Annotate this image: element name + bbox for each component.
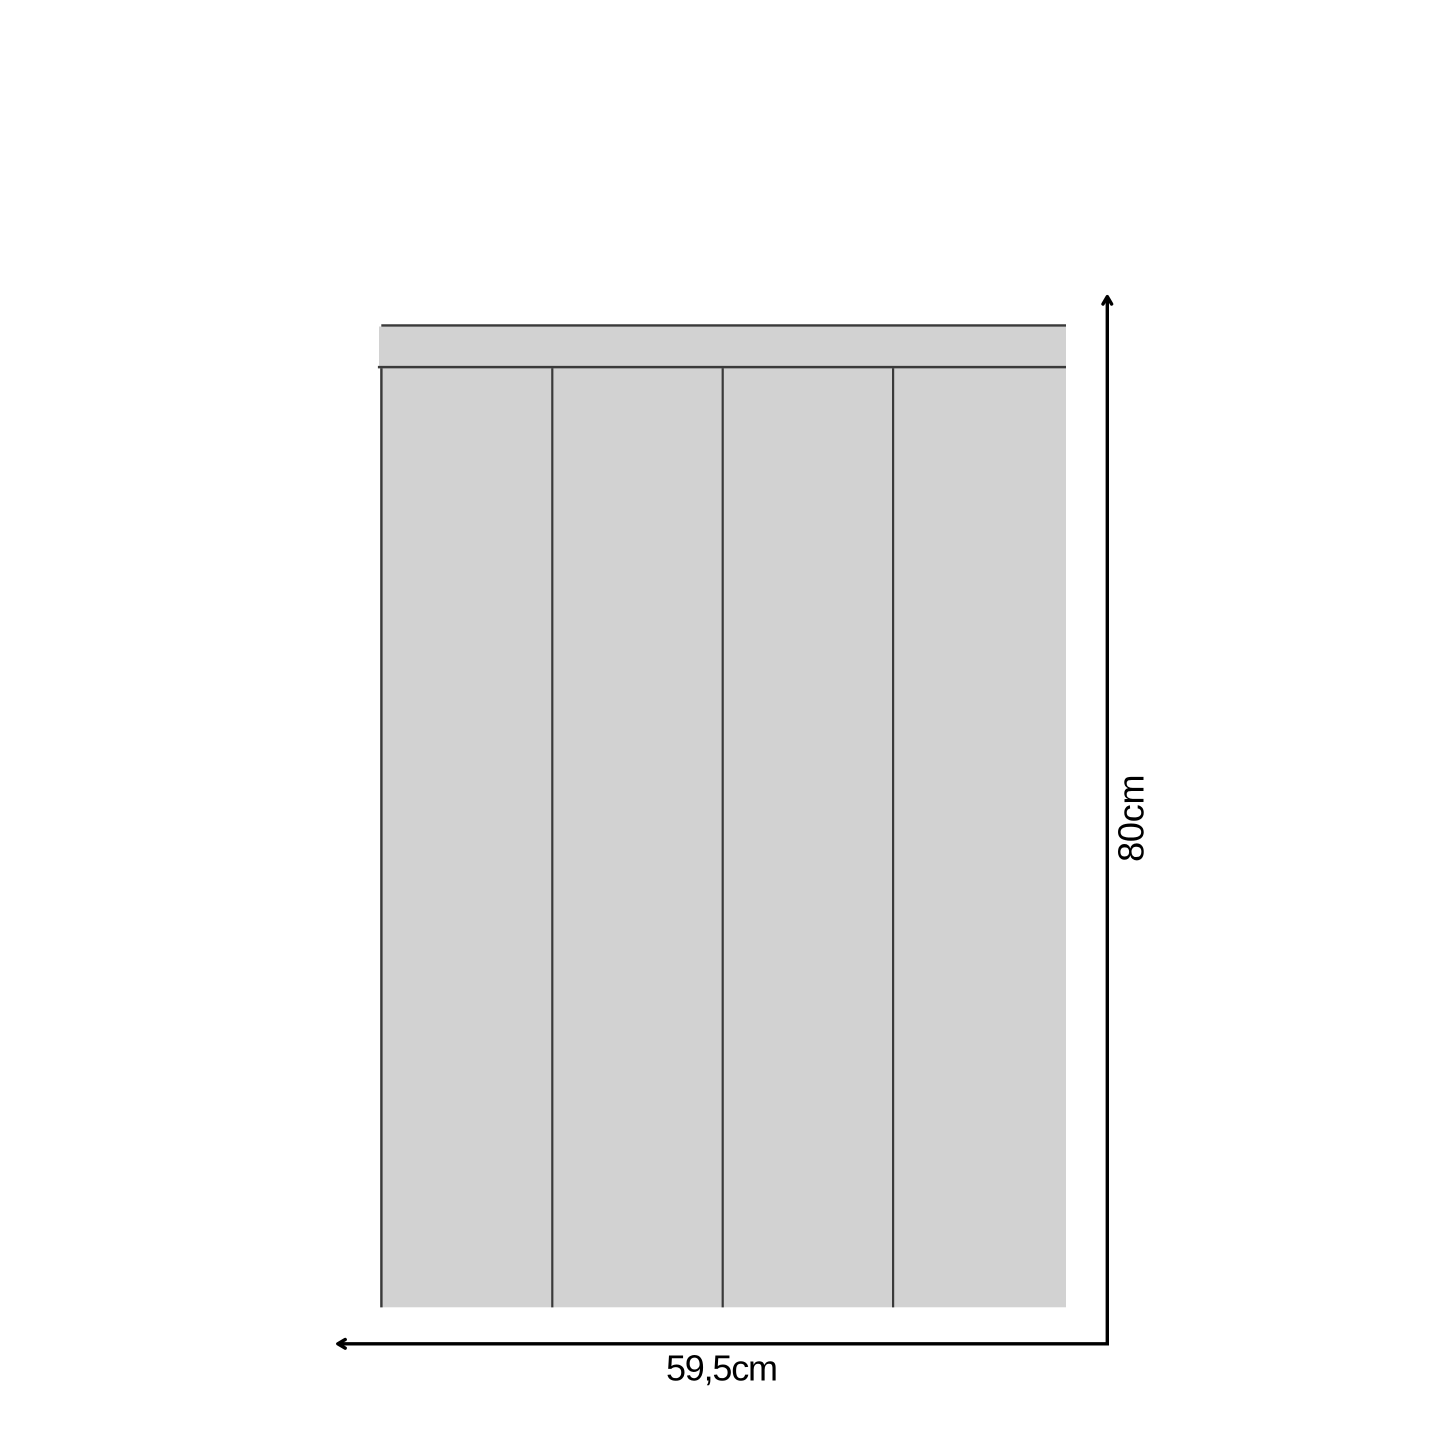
svg-text:80cm: 80cm: [1111, 775, 1152, 862]
svg-text:59,5cm: 59,5cm: [666, 1348, 777, 1389]
